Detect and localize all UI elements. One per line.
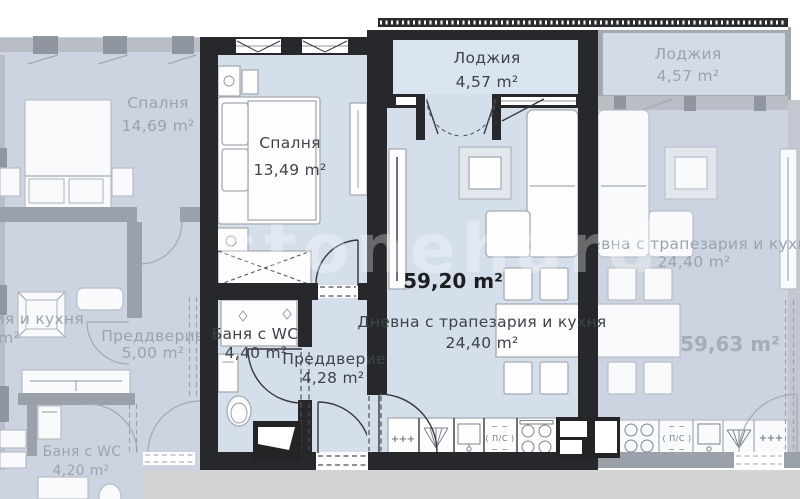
right-kitchen: ~ ~ ( П/С ) ~ ~ + + + <box>618 420 788 454</box>
right-loggia-label: Лоджия <box>654 45 721 63</box>
right-appliance-label: ( П/С ) <box>662 434 691 443</box>
floor-plan: Спалня 14,69 m² Дневна с трапезария и ку… <box>0 0 800 499</box>
right-total-area: 59,63 m² <box>680 332 780 356</box>
left-tv-console <box>22 370 130 394</box>
main-living-label: Дневна с трапезария и кухня <box>357 313 606 331</box>
main-loggia-label: Лоджия <box>453 49 520 67</box>
main-hall-label: Преддверие <box>282 350 386 368</box>
main-wardrobe <box>350 103 367 195</box>
left-living-area: 24,40 m² <box>0 329 20 347</box>
main-kitchen: + + + ~ ~ ( П/С ) ~ ~ <box>388 418 558 454</box>
main-bath-area: 4,40 m² <box>225 344 288 362</box>
right-living-area: 24,40 m² <box>657 253 730 271</box>
left-bath-label: Баня с WC <box>43 444 122 460</box>
appliance-label: ( П/С ) <box>485 434 514 443</box>
plus-icon: + <box>407 434 415 445</box>
main-loggia-area: 4,57 m² <box>456 73 519 91</box>
left-hall-label: Преддверие <box>101 327 205 345</box>
main-bedroom-area: 13,49 m² <box>253 161 326 179</box>
watermark: stonehard <box>218 210 663 289</box>
left-window-wall <box>0 38 200 52</box>
right-loggia <box>600 30 788 98</box>
left-bath-area: 4,20 m² <box>53 463 110 479</box>
main-hall-area: 4,28 m² <box>302 369 365 387</box>
left-hall-area: 5,00 m² <box>122 344 185 362</box>
right-tilde-top: ~ ~ <box>668 422 685 431</box>
left-bedroom-label: Спалня <box>127 94 189 112</box>
main-living-area: 24,40 m² <box>445 334 518 352</box>
tilde-top: ~ ~ <box>491 422 508 431</box>
left-living-label: Дневна с трапезария и кухня <box>0 310 84 328</box>
left-bedroom-area: 14,69 m² <box>121 117 194 135</box>
main-bath-label: Баня с WC <box>212 325 299 343</box>
right-loggia-area: 4,57 m² <box>657 67 720 85</box>
fridge-icon <box>556 417 620 458</box>
left-unit: Спалня 14,69 m² Дневна с трапезария и ку… <box>0 36 205 499</box>
main-bedroom-label: Спалня <box>259 134 321 152</box>
bathroom-corner-box <box>253 421 301 461</box>
balcony-railing <box>378 18 788 30</box>
plus-icon: + <box>775 433 783 444</box>
floor-plan-page: Спалня 14,69 m² Дневна с трапезария и ку… <box>0 0 800 499</box>
